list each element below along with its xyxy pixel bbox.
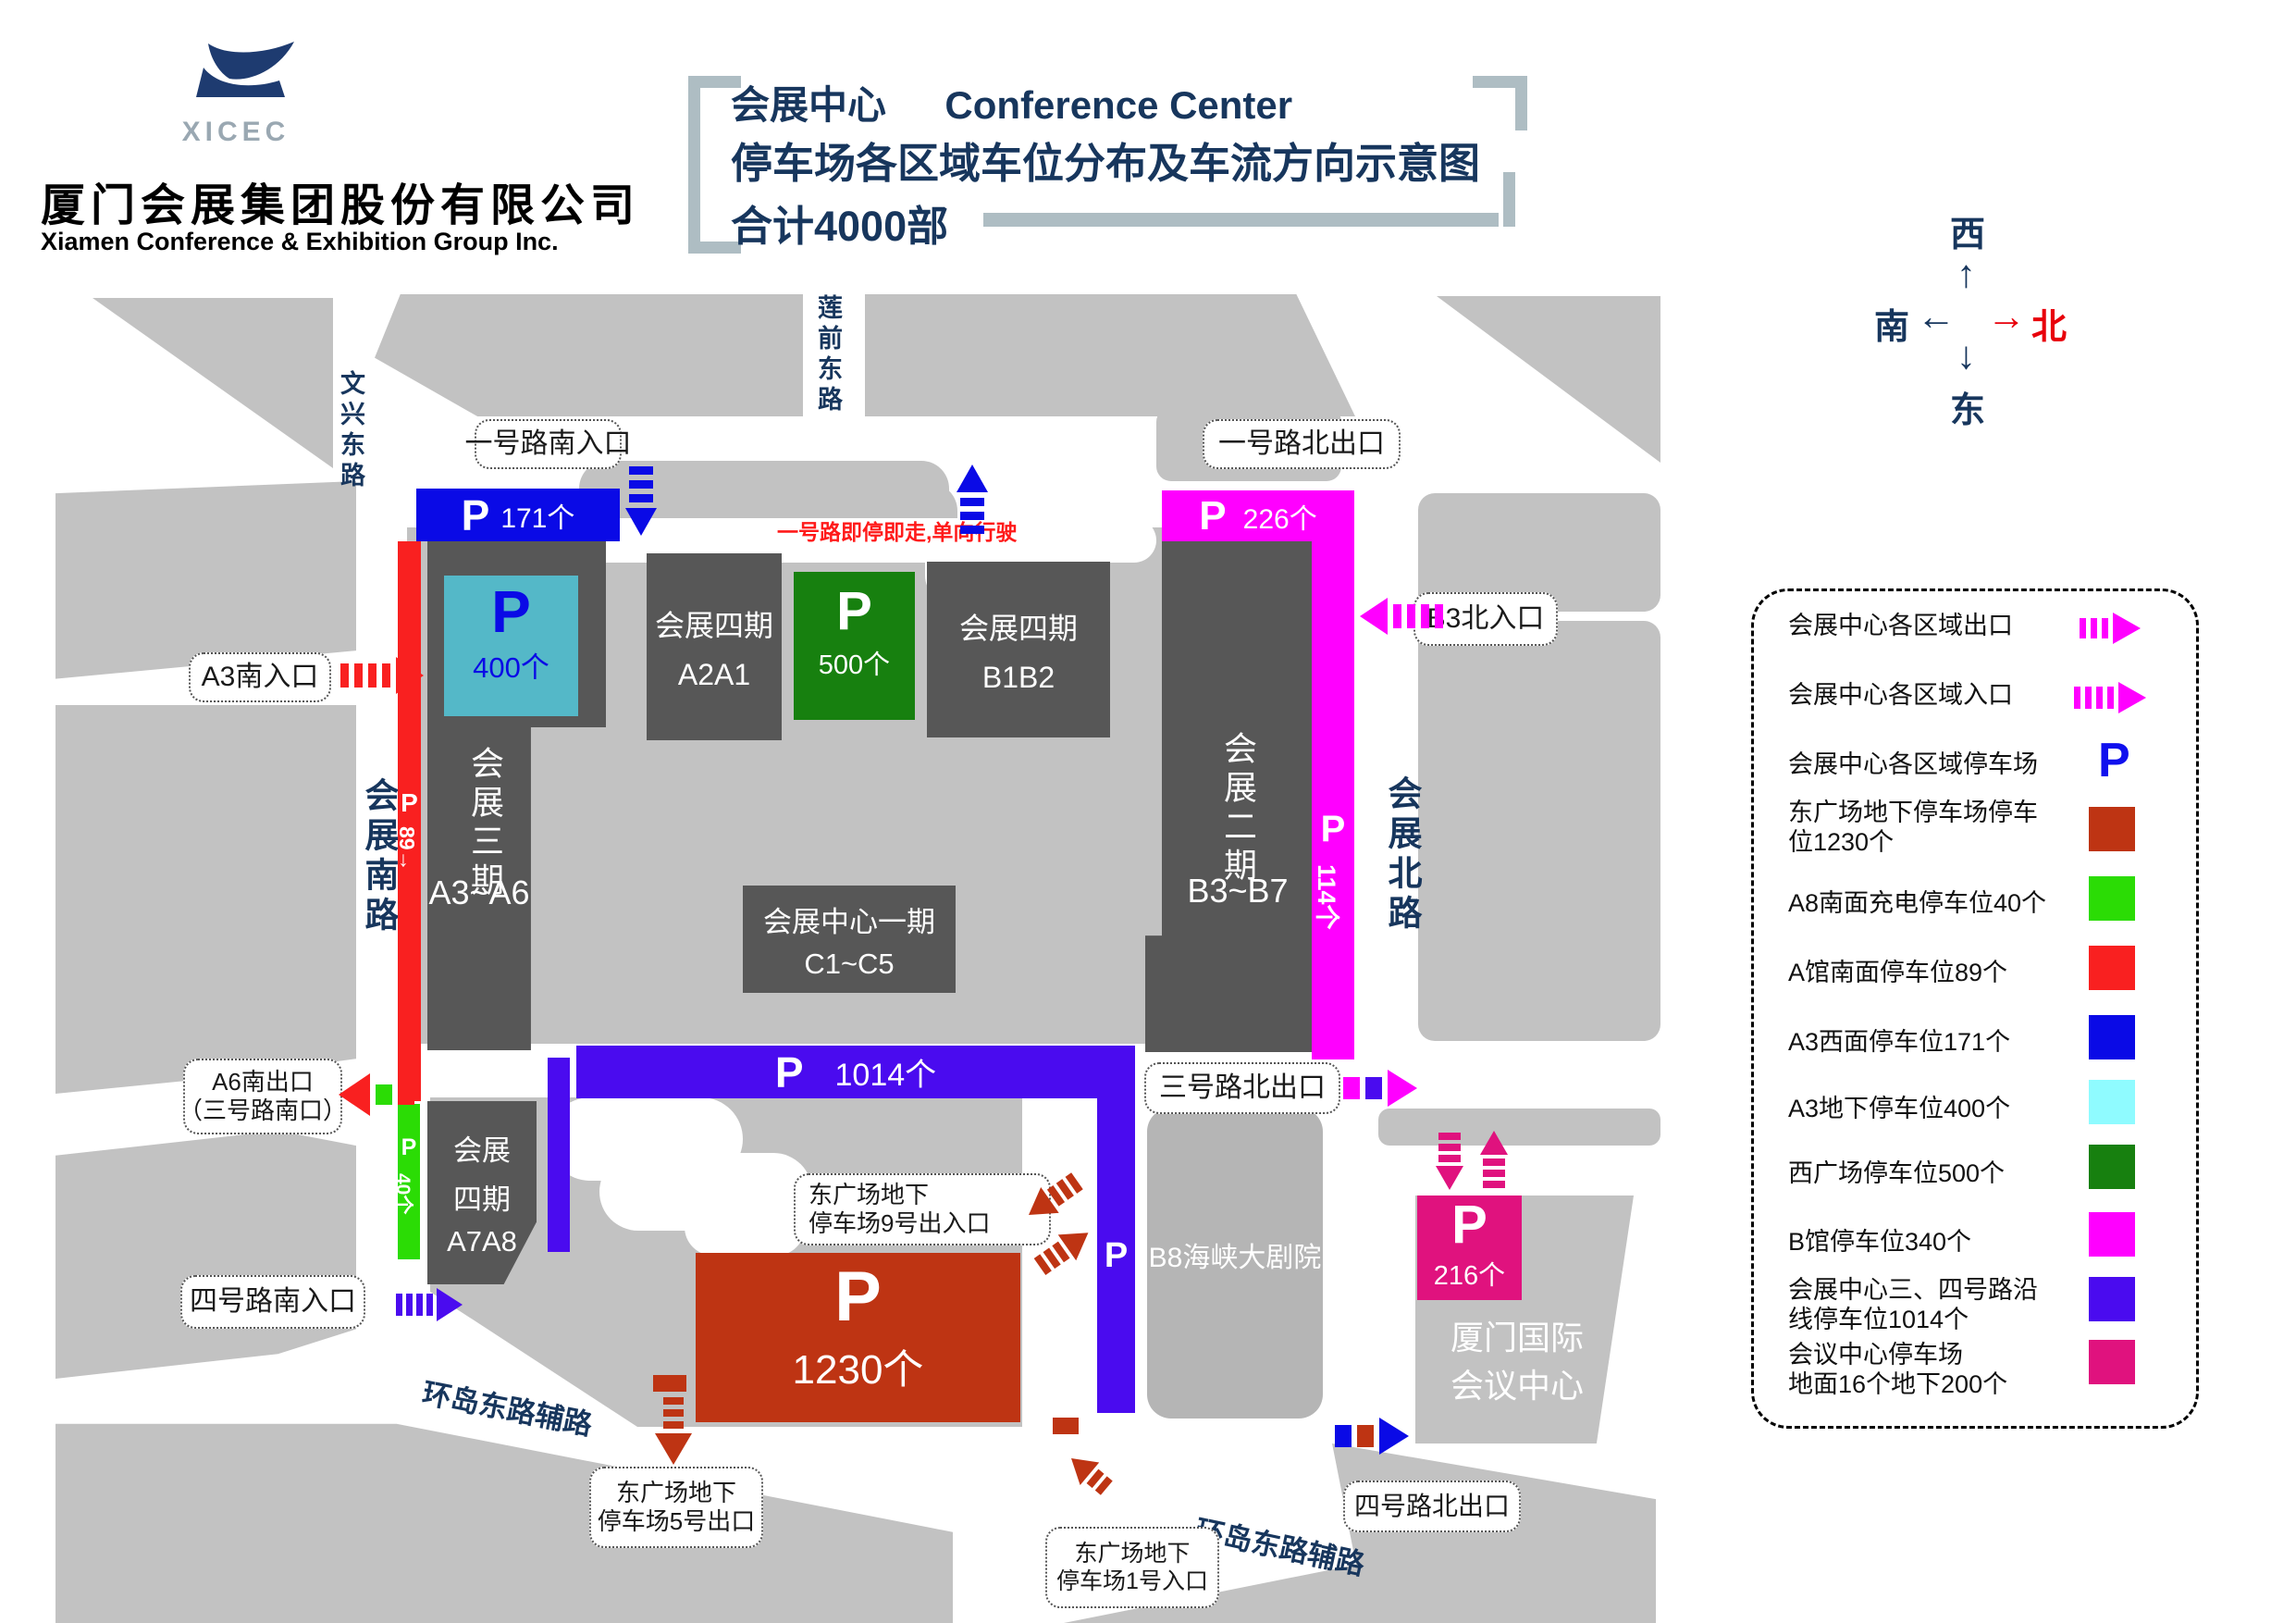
- title-en: Conference Center: [944, 83, 1292, 127]
- legend-label-a8: A8南面充电停车位40个: [1788, 888, 2046, 918]
- box-exit4n-text: 四号路北出口: [1354, 1491, 1510, 1522]
- p-symbol-40: P: [398, 1134, 420, 1161]
- compass-arrow-down-icon: ↓: [1957, 333, 1976, 378]
- arrow-icc-entry-icon: [1480, 1131, 1508, 1188]
- box-exit-road1-north: 一号路北出口: [1203, 419, 1401, 469]
- compass-arrow-up-icon: ↑: [1957, 252, 1976, 296]
- parking-strip-side: [548, 1058, 570, 1252]
- box-gate1-line2: 停车场1号入口: [1056, 1567, 1208, 1595]
- building-phase1-c1c5: 会展中心一期 C1~C5: [743, 886, 956, 993]
- block-east-3: [1378, 1109, 1660, 1146]
- arrow-icc-exit-icon: [1436, 1133, 1463, 1190]
- box-b3n-text: B3北入口: [1427, 602, 1545, 636]
- parking-bar-89: [398, 541, 421, 1101]
- box-gate5-line1: 东广场地下: [616, 1479, 736, 1507]
- legend-exit-arrow-icon: [2080, 613, 2141, 644]
- block-top-b: [865, 294, 1355, 416]
- count-1014: 1014个: [835, 1049, 937, 1095]
- arrow-entry-road1-south-icon: [625, 466, 657, 536]
- building-b8-label: B8海峡大剧院: [1147, 1234, 1323, 1275]
- building-phase4-a2a1: 会展四期 A2A1: [647, 553, 782, 740]
- company-name-cn: 厦门会展集团股份有限公司: [41, 168, 688, 233]
- block-southwest: [56, 1406, 953, 1623]
- box-entry4s-text: 四号路南入口: [190, 1285, 356, 1319]
- parking-map-page: XICEC 厦门会展集团股份有限公司 Xiamen Conference & E…: [0, 0, 2296, 1623]
- arrow-exit-a6-south-icon: [339, 1073, 414, 1116]
- building-phase2-label: 会展二期: [1214, 731, 1262, 886]
- box-entry-a3-south: A3南入口: [189, 652, 331, 702]
- arrow-entry-b3-north-icon: [1360, 598, 1443, 635]
- legend-swatch-magenta: [2089, 1212, 2135, 1257]
- road-label-huizhan-north: 会展北路: [1376, 775, 1426, 935]
- compass-arrow-left-icon: ←: [1917, 294, 1956, 339]
- arrow-gate1-entry-icon: [1062, 1447, 1117, 1500]
- compass-west: 西: [1950, 205, 1985, 256]
- arrow-entry-a3-south-icon: [340, 657, 424, 694]
- legend-label-west-plaza: 西广场停车位500个: [1788, 1158, 2005, 1188]
- legend-label-parking: 会展中心各区域停车场: [1788, 750, 2038, 779]
- count-89: 89→: [394, 826, 419, 872]
- icc-line1: 厦门国际: [1425, 1314, 1610, 1362]
- p-symbol-500: P: [794, 581, 915, 643]
- road-label-lianqian: 莲前东路: [810, 294, 846, 416]
- building-phase1-line2: C1~C5: [804, 948, 894, 981]
- logo-acronym: XICEC: [176, 117, 296, 148]
- box-gate1: 东广场地下 停车场1号入口: [1045, 1527, 1219, 1608]
- parking-lot-216: P 216个: [1417, 1196, 1522, 1300]
- arrow-exit-road1-north-icon: [957, 465, 988, 534]
- p-symbol-1014: P: [775, 1047, 804, 1097]
- arrow-entry-road4-south-icon: [396, 1288, 463, 1321]
- p-symbol-226: P: [1199, 493, 1226, 539]
- parking-lot-1230: P 1230个: [696, 1253, 1020, 1422]
- box-a3s-text: A3南入口: [202, 661, 319, 694]
- legend-p-icon: P: [2098, 733, 2130, 788]
- box-exit-road3-north: 三号路北出口: [1144, 1062, 1340, 1114]
- p-symbol-89: P: [398, 788, 421, 818]
- building-phase4a-line2: A2A1: [678, 658, 750, 692]
- building-phase4-b1b2: 会展四期 B1B2: [927, 562, 1110, 737]
- box-gate9: 东广场地下 停车场9号出入口: [794, 1173, 1051, 1245]
- box-exit-a6-south: A6南出口 （三号路南口）: [183, 1059, 342, 1134]
- compass-arrow-right-icon: →: [1987, 294, 2026, 339]
- parking-bar-226: P 226个: [1162, 490, 1354, 541]
- total-count: 合计4000部: [731, 192, 948, 253]
- legend-label-icc-l1: 会议中心停车场: [1788, 1341, 1963, 1369]
- box-exit3n-text: 三号路北出口: [1159, 1072, 1326, 1105]
- legend-entry-arrow-icon: [2074, 682, 2146, 713]
- arrow-exit-road3-north-icon: [1343, 1070, 1417, 1107]
- p-symbol-114: P: [1312, 809, 1354, 850]
- title-bracket-top-right: [1473, 76, 1527, 130]
- count-114: 114个: [1311, 864, 1347, 930]
- compass-north: 北: [2031, 298, 2067, 349]
- p-symbol: P: [462, 490, 490, 540]
- road-cut-5: [685, 1198, 805, 1256]
- count-40: 40个: [390, 1173, 418, 1214]
- road-label-wenxing: 文兴东路: [333, 370, 369, 492]
- block-west-3: [56, 1131, 356, 1379]
- title-bracket-bottom-right: [1503, 172, 1515, 227]
- box-exit-road4-north: 四号路北出口: [1343, 1481, 1521, 1532]
- building-phase3-sub: A3~A6: [427, 873, 531, 912]
- legend-label-exit: 会展中心各区域出口: [1788, 611, 2013, 640]
- building-phase1-line1: 会展中心一期: [763, 898, 935, 940]
- title-cn: 会展中心: [731, 83, 886, 127]
- company-name-en: Xiamen Conference & Exhibition Group Inc…: [41, 228, 688, 256]
- legend-label-east-plaza-l1: 东广场地下停车场停车: [1788, 799, 2038, 826]
- count-500: 500个: [794, 643, 915, 682]
- block-top-left-triangle: [93, 298, 333, 468]
- block-top-a: [375, 294, 803, 416]
- building-phase4a-line1: 会展四期: [655, 602, 773, 645]
- box-entry-road1-south: 一号路南入口: [475, 419, 622, 469]
- building-phase4b-line1: 会展四期: [959, 605, 1078, 648]
- parking-lot-400: P 400个: [444, 576, 578, 716]
- legend-label-road34-l2: 线停车位1014个: [1788, 1306, 1969, 1333]
- legend-label-a3-under: A3地下停车位400个: [1788, 1094, 2010, 1123]
- building-icc-label: 厦门国际 会议中心: [1425, 1314, 1610, 1410]
- page-title: 会展中心 Conference Center: [731, 74, 1292, 130]
- legend-swatch-cyan: [2089, 1080, 2135, 1124]
- count-400: 400个: [444, 644, 578, 686]
- box-gate9-line1: 东广场地下: [809, 1181, 929, 1209]
- box-gate5-line2: 停车场5号出口: [598, 1507, 755, 1536]
- count-216: 216个: [1417, 1254, 1522, 1293]
- box-a6s-line2: （三号路南口）: [179, 1096, 347, 1125]
- p-symbol-216: P: [1417, 1197, 1522, 1254]
- p-symbol-1014-v: P: [1097, 1236, 1135, 1276]
- building-phase4c-line3: A7A8: [447, 1225, 517, 1258]
- parking-bar-1014: P 1014个: [576, 1046, 1135, 1098]
- p-symbol-400: P: [444, 579, 578, 644]
- parking-strip-114: [1312, 541, 1354, 1059]
- compass-east: 东: [1950, 381, 1985, 432]
- legend-swatch-brick: [2089, 807, 2135, 851]
- parking-lot-500: P 500个: [794, 572, 915, 720]
- page-subtitle: 停车场各区域车位分布及车流方向示意图: [731, 130, 1480, 190]
- arrow-exit-road4-north-icon: [1335, 1418, 1409, 1455]
- legend-label-east-plaza-l2: 位1230个: [1788, 828, 1894, 856]
- building-phase4c-line1: 会展: [453, 1127, 511, 1169]
- block-east-2: [1418, 621, 1660, 1041]
- legend-label-a3-west: A3西面停车位171个: [1788, 1027, 2010, 1057]
- legend-swatch-pink: [2089, 1340, 2135, 1384]
- icc-line2: 会议中心: [1425, 1362, 1610, 1410]
- legend-swatch-violet: [2089, 1277, 2135, 1321]
- box-entry1s-text: 一号路南入口: [465, 427, 632, 461]
- arrow-gate5-stub: [653, 1375, 686, 1392]
- building-phase4c-line2: 四期: [453, 1176, 511, 1218]
- box-a6s-line1: A6南出口: [212, 1068, 314, 1096]
- p-symbol-1230: P: [696, 1258, 1020, 1336]
- legend-label-b-hall: B馆停车位340个: [1788, 1227, 1971, 1257]
- box-entry-road4-south: 四号路南入口: [180, 1275, 365, 1329]
- count-171: 171个: [500, 495, 574, 536]
- building-phase2-sub: B3~B7: [1182, 872, 1293, 911]
- parking-bar-171: P 171个: [416, 489, 620, 541]
- legend-label-a-hall: A馆南面停车位89个: [1788, 958, 2007, 987]
- title-underline: [983, 213, 1499, 227]
- legend-label-road34-l1: 会展中心三、四号路沿: [1788, 1276, 2038, 1304]
- legend-label-entry: 会展中心各区域入口: [1788, 680, 2013, 710]
- box-exit1n-text: 一号路北出口: [1218, 427, 1385, 461]
- arrow-gate1-stub: [1053, 1418, 1079, 1434]
- count-226: 226个: [1243, 496, 1317, 537]
- legend-swatch-red: [2089, 946, 2135, 990]
- legend-label-icc-l2: 地面16个地下200个: [1788, 1370, 2007, 1398]
- building-phase4b-line2: B1B2: [982, 661, 1055, 695]
- box-gate5: 东广场地下 停车场5号出口: [589, 1467, 763, 1548]
- count-1230: 1230个: [696, 1336, 1020, 1395]
- xicec-logo-icon: [176, 42, 296, 116]
- box-gate1-line1: 东广场地下: [1074, 1540, 1190, 1567]
- arrow-gate5-exit-icon: [655, 1397, 692, 1465]
- legend-swatch-green: [2089, 876, 2135, 921]
- block-west-2: [56, 705, 356, 1094]
- box-gate9-line2: 停车场9号出入口: [809, 1209, 990, 1238]
- block-top-right-triangle: [1437, 296, 1660, 463]
- legend-swatch-blue: [2089, 1015, 2135, 1059]
- compass-south: 南: [1874, 298, 1909, 349]
- legend-swatch-dgreen: [2089, 1145, 2135, 1189]
